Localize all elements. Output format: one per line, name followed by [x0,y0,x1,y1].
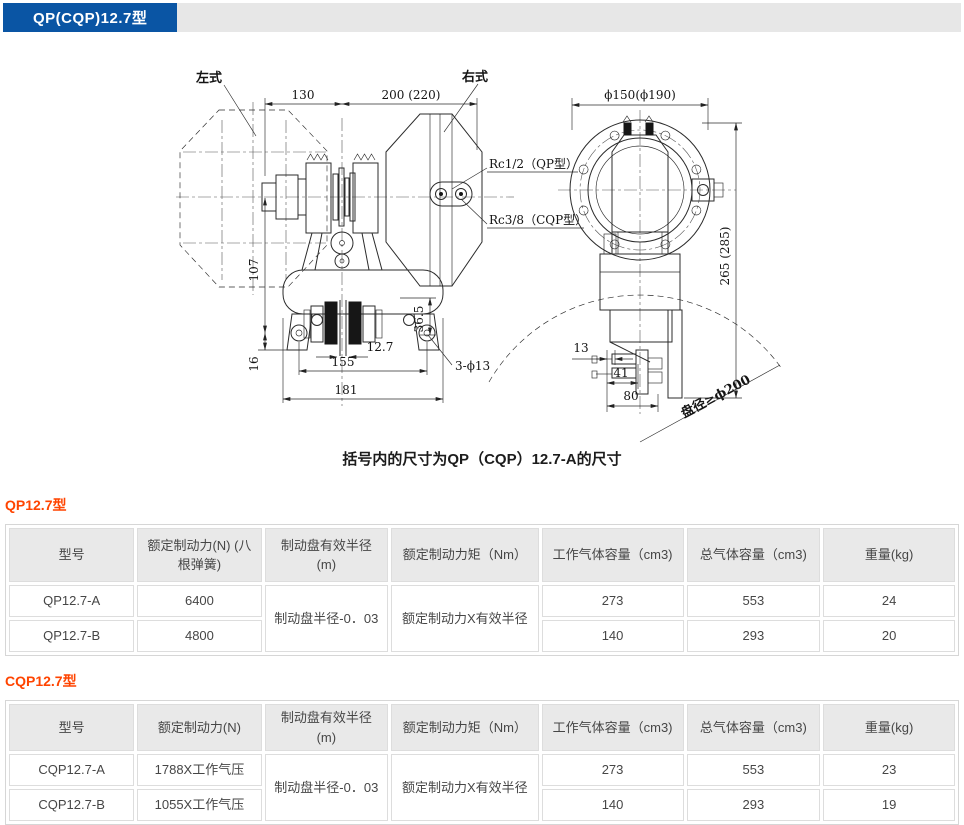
dim-200-label: 200 (220) [382,88,441,102]
col-header-radius: 制动盘有效半径(m) [265,704,388,751]
qp-spec-table: 型号 额定制动力(N) (八根弹簧) 制动盘有效半径(m) 额定制动力矩（Nm）… [5,524,959,656]
dim-36-5-label: 36.5 [412,306,426,333]
dim-130-label: 130 [292,88,315,102]
cell-force: 4800 [137,620,261,652]
cell-weight: 23 [823,754,955,786]
dim-12-7-label: 12.7 [367,340,394,354]
dia-150-label: ϕ150(ϕ190) [604,88,676,102]
cell-radius-formula: 制动盘半径-0．03 [265,585,388,652]
table-header-row: 型号 额定制动力(N) (八根弹簧) 制动盘有效半径(m) 额定制动力矩（Nm）… [9,528,955,582]
cell-work-vol: 140 [542,620,684,652]
col-header-force: 额定制动力(N) [137,704,261,751]
section-title-qp: QP12.7型 [5,495,959,515]
cell-torque-formula: 额定制动力X有效半径 [391,754,539,821]
col-header-weight: 重量(kg) [823,528,955,582]
col-header-total-vol: 总气体容量（cm3) [687,704,821,751]
cell-total-vol: 293 [687,620,821,652]
table-row: CQP12.7-A 1788X工作气压 制动盘半径-0．03 额定制动力X有效半… [9,754,955,786]
cell-radius-formula: 制动盘半径-0．03 [265,754,388,821]
cell-model: CQP12.7-B [9,789,134,821]
holes-label: 3-ϕ13 [455,359,490,373]
right-type-outline [386,114,482,286]
col-header-work-vol: 工作气体容量（cm3) [542,704,684,751]
cell-model: CQP12.7-A [9,754,134,786]
col-header-model: 型号 [9,704,134,751]
cell-torque-formula: 额定制动力X有效半径 [391,585,539,652]
dim-16-label: 16 [247,356,261,371]
dim-155-label: 155 [332,355,355,369]
page-title: QP(CQP)12.7型 [3,3,177,32]
disc-diameter-label: 盘径≥ϕ200 [678,372,753,422]
dim-41-label: 41 [613,366,628,380]
col-header-torque: 额定制动力矩（Nm） [391,528,539,582]
rc-qp-label: Rc1/2（QP型） [489,157,578,171]
col-header-force: 额定制动力(N) (八根弹簧) [137,528,261,582]
dim-13-label: 13 [573,341,588,355]
cell-total-vol: 553 [687,754,821,786]
side-view: 盘径≥ϕ200 ϕ150(ϕ190) 265 (285) 13 41 80 [489,88,782,442]
col-header-radius: 制动盘有效半径(m) [265,528,388,582]
cell-force: 1788X工作气压 [137,754,261,786]
section-title-cqp: CQP12.7型 [5,671,959,691]
cell-work-vol: 273 [542,754,684,786]
technical-drawing: 左式 [0,32,964,444]
drawing-caption: 括号内的尺寸为QP（CQP）12.7-A的尺寸 [0,448,964,469]
cell-weight: 24 [823,585,955,617]
dim-80-label: 80 [623,389,638,403]
dim-107-label: 107 [247,259,261,282]
col-header-work-vol: 工作气体容量（cm3) [542,528,684,582]
cell-model: QP12.7-A [9,585,134,617]
cell-force: 1055X工作气压 [137,789,261,821]
cell-weight: 19 [823,789,955,821]
col-header-model: 型号 [9,528,134,582]
rc-cqp-label: Rc3/8（CQP型） [489,213,587,227]
cell-force: 6400 [137,585,261,617]
cell-model: QP12.7-B [9,620,134,652]
table-header-row: 型号 额定制动力(N) 制动盘有效半径(m) 额定制动力矩（Nm） 工作气体容量… [9,704,955,751]
cell-total-vol: 553 [687,585,821,617]
table-row: QP12.7-A 6400 制动盘半径-0．03 额定制动力X有效半径 273 … [9,585,955,617]
right-type-label: 右式 [461,69,488,85]
cell-work-vol: 273 [542,585,684,617]
dim-181-label: 181 [335,383,358,397]
col-header-total-vol: 总气体容量（cm3) [687,528,821,582]
cell-total-vol: 293 [687,789,821,821]
col-header-torque: 额定制动力矩（Nm） [391,704,539,751]
col-header-weight: 重量(kg) [823,704,955,751]
top-bar: QP(CQP)12.7型 [3,3,961,32]
cell-weight: 20 [823,620,955,652]
front-view: 左式 [176,69,587,406]
cell-work-vol: 140 [542,789,684,821]
left-type-label: 左式 [196,70,222,86]
cqp-spec-table: 型号 额定制动力(N) 制动盘有效半径(m) 额定制动力矩（Nm） 工作气体容量… [5,700,959,825]
dim-265-label: 265 (285) [718,227,732,286]
